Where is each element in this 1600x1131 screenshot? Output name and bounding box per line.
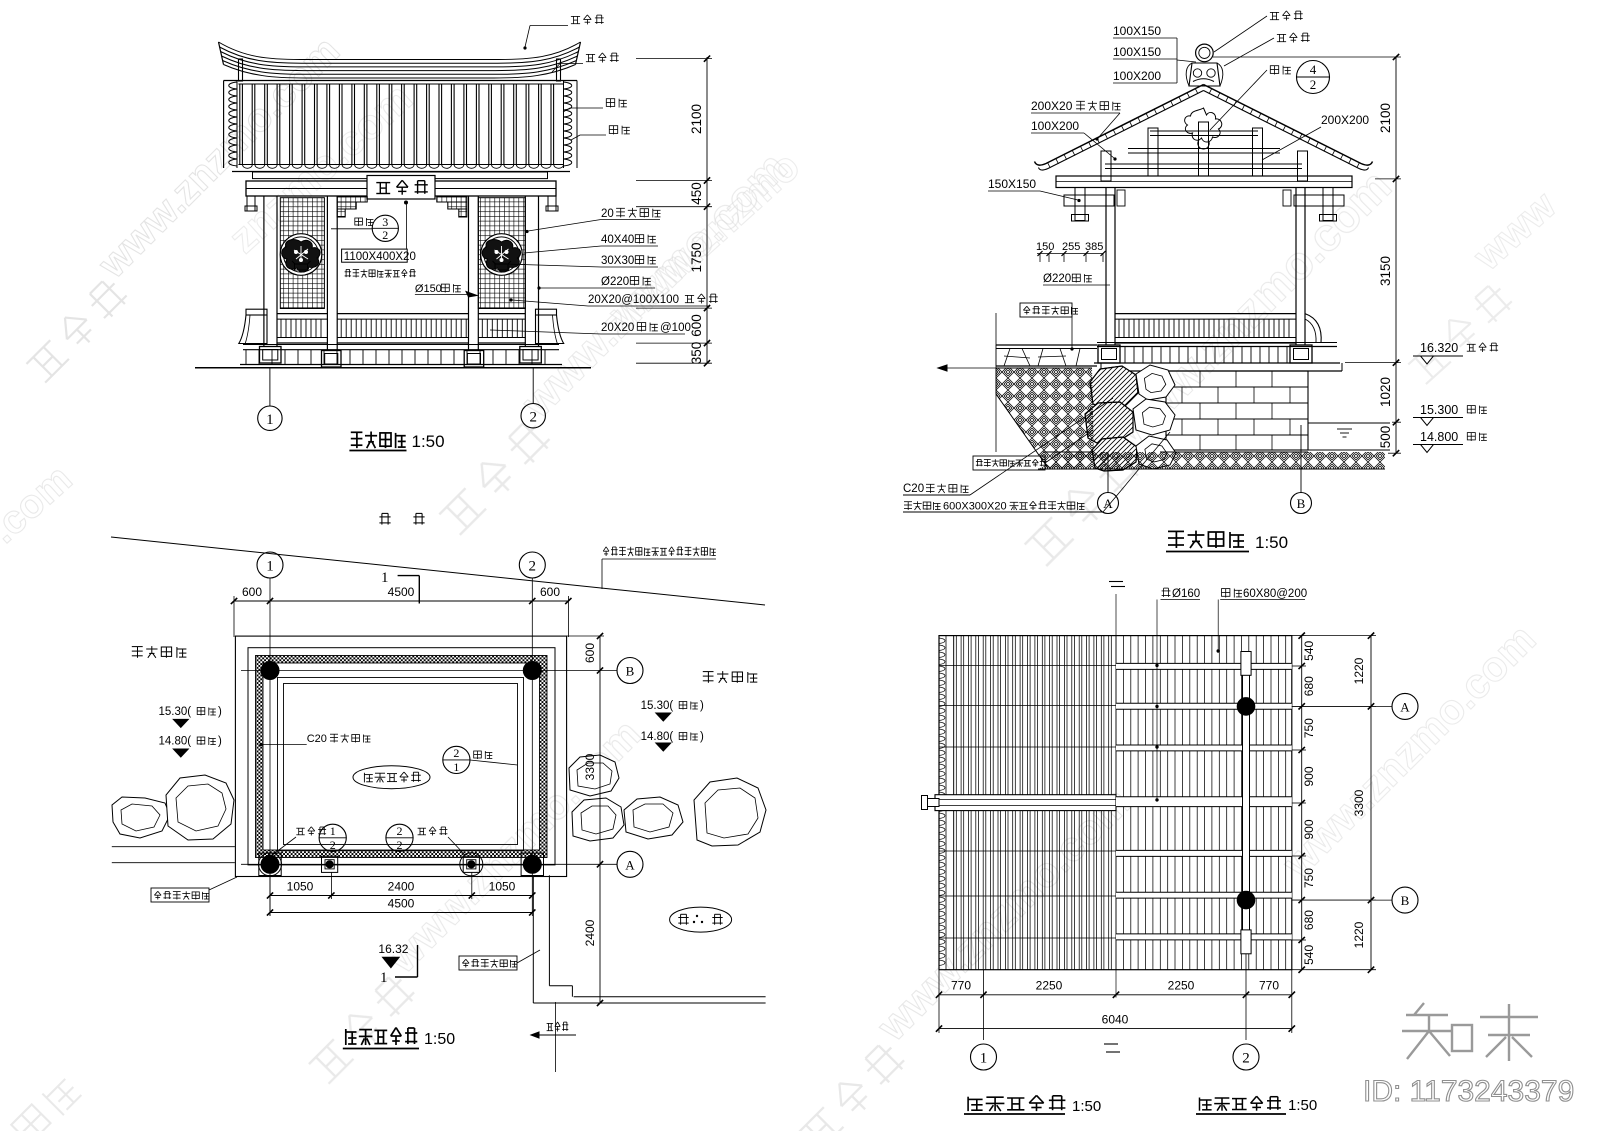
svg-text:): ) — [700, 700, 704, 712]
svg-text:3300: 3300 — [1352, 789, 1366, 816]
svg-text:B: B — [1401, 893, 1410, 908]
svg-text:20X20@100X100: 20X20@100X100 — [588, 294, 679, 306]
svg-text:4500: 4500 — [388, 897, 415, 911]
svg-text:600: 600 — [540, 585, 560, 599]
svg-text:1: 1 — [381, 570, 389, 586]
svg-text:15.30(: 15.30( — [641, 700, 674, 712]
svg-text:2: 2 — [1242, 1051, 1250, 1067]
svg-text:1100X400X20: 1100X400X20 — [344, 251, 416, 263]
svg-text:40X40: 40X40 — [601, 234, 634, 246]
svg-text:): ) — [218, 706, 222, 718]
svg-text:B: B — [626, 664, 635, 679]
svg-text:30X30: 30X30 — [601, 255, 634, 267]
svg-text:15.30(: 15.30( — [159, 706, 192, 718]
svg-text:20X20: 20X20 — [601, 322, 634, 334]
svg-text:A: A — [1400, 699, 1410, 714]
svg-text:3: 3 — [382, 215, 388, 229]
svg-text:14.80(: 14.80( — [159, 736, 192, 748]
svg-text:4: 4 — [1310, 62, 1317, 77]
svg-text:600X300X20: 600X300X20 — [943, 501, 1007, 513]
svg-text:100X200: 100X200 — [1031, 119, 1079, 133]
svg-text:ID: 1173243379: ID: 1173243379 — [1363, 1075, 1574, 1108]
svg-text:1: 1 — [330, 824, 336, 838]
svg-text:20: 20 — [601, 208, 614, 220]
svg-text:2250: 2250 — [1036, 979, 1063, 993]
svg-text:2: 2 — [529, 410, 537, 426]
svg-text:600: 600 — [242, 585, 262, 599]
svg-text:14.80(: 14.80( — [641, 731, 674, 743]
svg-text:1050: 1050 — [287, 880, 314, 894]
svg-text:1: 1 — [980, 1051, 988, 1067]
svg-text:2: 2 — [397, 838, 403, 852]
svg-text:500: 500 — [1378, 426, 1393, 449]
svg-text:2400: 2400 — [583, 919, 597, 946]
svg-text:2: 2 — [529, 559, 537, 575]
svg-text:200X20: 200X20 — [1031, 99, 1073, 113]
svg-text:14.800: 14.800 — [1420, 430, 1458, 444]
svg-text:1220: 1220 — [1352, 657, 1366, 684]
svg-text:15.300: 15.300 — [1420, 403, 1458, 417]
svg-text:4500: 4500 — [388, 585, 415, 599]
svg-text:540: 540 — [1302, 945, 1316, 965]
svg-text:750: 750 — [1302, 718, 1316, 738]
svg-text:2100: 2100 — [689, 104, 704, 134]
svg-text:1: 1 — [453, 760, 459, 774]
svg-text:350: 350 — [689, 342, 704, 365]
svg-text:6040: 6040 — [1102, 1012, 1129, 1026]
svg-text:C20: C20 — [307, 733, 327, 745]
svg-text:255: 255 — [1062, 241, 1080, 253]
svg-text:450: 450 — [689, 182, 704, 205]
svg-text:100X200: 100X200 — [1113, 69, 1161, 83]
svg-text:1:50: 1:50 — [1255, 533, 1288, 552]
svg-text:3300: 3300 — [583, 753, 597, 780]
svg-text:Ø160: Ø160 — [1172, 588, 1200, 600]
svg-text:100X150: 100X150 — [1113, 24, 1161, 38]
svg-text:1: 1 — [380, 970, 388, 986]
svg-text:1:50: 1:50 — [424, 1031, 455, 1048]
svg-text:1220: 1220 — [1352, 921, 1366, 948]
svg-text:2400: 2400 — [388, 880, 415, 894]
svg-text:1:50: 1:50 — [1288, 1097, 1317, 1114]
svg-text:2250: 2250 — [1168, 979, 1195, 993]
svg-text:770: 770 — [951, 979, 971, 993]
svg-text:Ø220: Ø220 — [601, 276, 629, 288]
svg-text:Ø150: Ø150 — [415, 283, 442, 295]
svg-text:60X80@200: 60X80@200 — [1243, 588, 1307, 600]
svg-text:100X150: 100X150 — [1113, 45, 1161, 59]
svg-text:C20: C20 — [903, 483, 924, 495]
svg-text:): ) — [218, 736, 222, 748]
svg-text:680: 680 — [1302, 910, 1316, 930]
svg-text:150X150: 150X150 — [988, 177, 1036, 191]
svg-text:600: 600 — [689, 314, 704, 337]
svg-text:A: A — [1103, 496, 1113, 511]
svg-text:B: B — [1297, 496, 1306, 511]
svg-text:2: 2 — [382, 228, 388, 242]
svg-text:A: A — [625, 857, 635, 872]
svg-text:150: 150 — [1036, 241, 1054, 253]
svg-text:1750: 1750 — [689, 242, 704, 272]
svg-text:Ø220: Ø220 — [1043, 273, 1071, 285]
svg-text:200X200: 200X200 — [1321, 113, 1369, 127]
svg-text:1: 1 — [266, 412, 274, 428]
svg-text:900: 900 — [1302, 819, 1316, 839]
svg-text:1:50: 1:50 — [1072, 1098, 1101, 1115]
svg-text:600: 600 — [583, 643, 597, 663]
svg-text:@100: @100 — [660, 322, 691, 334]
svg-text:1050: 1050 — [489, 880, 516, 894]
svg-text:3150: 3150 — [1378, 256, 1393, 286]
svg-text:1020: 1020 — [1378, 377, 1393, 407]
svg-text:900: 900 — [1302, 766, 1316, 786]
svg-text:1:50: 1:50 — [412, 432, 445, 451]
svg-text:2: 2 — [397, 824, 403, 838]
svg-text:680: 680 — [1302, 676, 1316, 696]
svg-text:2100: 2100 — [1378, 103, 1393, 133]
svg-text:): ) — [700, 731, 704, 743]
svg-text:2: 2 — [330, 838, 336, 852]
svg-text:16.320: 16.320 — [1420, 341, 1458, 355]
svg-text:540: 540 — [1302, 640, 1316, 660]
svg-text:2: 2 — [1310, 77, 1317, 92]
svg-text:2: 2 — [453, 746, 459, 760]
svg-text:750: 750 — [1302, 868, 1316, 888]
svg-text:770: 770 — [1259, 979, 1279, 993]
svg-text:16.32: 16.32 — [378, 942, 408, 956]
svg-text:1: 1 — [266, 559, 274, 575]
